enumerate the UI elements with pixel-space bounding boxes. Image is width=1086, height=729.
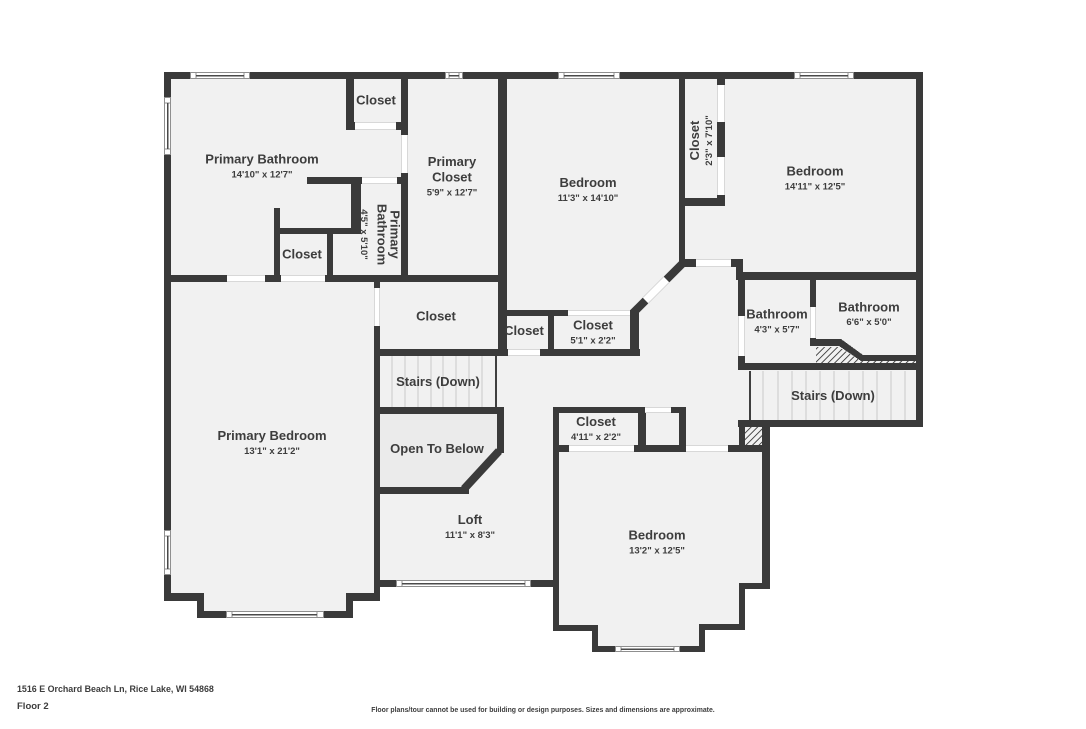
- svg-text:6'6" x 5'0": 6'6" x 5'0": [846, 317, 891, 328]
- svg-text:Primary Bathroom: Primary Bathroom: [205, 152, 318, 167]
- svg-text:14'10" x 12'7": 14'10" x 12'7": [231, 170, 292, 181]
- svg-text:14'11" x 12'5": 14'11" x 12'5": [785, 182, 846, 193]
- svg-text:Bedroom: Bedroom: [628, 528, 685, 543]
- svg-text:Primary: Primary: [428, 154, 477, 169]
- svg-text:Stairs (Down): Stairs (Down): [396, 374, 480, 389]
- svg-text:11'3" x 14'10": 11'3" x 14'10": [558, 193, 619, 204]
- svg-text:4'3" x 5'7": 4'3" x 5'7": [754, 325, 799, 336]
- svg-text:Closet: Closet: [432, 170, 472, 185]
- svg-text:11'1" x 8'3": 11'1" x 8'3": [445, 530, 495, 541]
- svg-text:Bedroom: Bedroom: [786, 164, 843, 179]
- svg-text:13'2" x 12'5": 13'2" x 12'5": [629, 546, 685, 557]
- svg-text:5'9" x 12'7": 5'9" x 12'7": [427, 188, 478, 199]
- svg-text:4'11" x 2'2": 4'11" x 2'2": [571, 432, 621, 443]
- svg-text:Closet: Closet: [576, 414, 616, 429]
- svg-text:13'1" x 21'2": 13'1" x 21'2": [244, 446, 300, 457]
- svg-text:Open To Below: Open To Below: [390, 441, 485, 456]
- svg-text:Loft: Loft: [458, 512, 483, 527]
- svg-text:Floor plans/tour cannot be use: Floor plans/tour cannot be used for buil…: [371, 707, 715, 714]
- svg-text:Stairs (Down): Stairs (Down): [791, 388, 875, 403]
- svg-text:2'3" x 7'10": 2'3" x 7'10": [704, 115, 715, 166]
- svg-text:Closet: Closet: [356, 93, 396, 108]
- svg-text:Closet: Closet: [687, 120, 702, 160]
- svg-text:Bathroom: Bathroom: [746, 307, 807, 322]
- svg-text:Closet: Closet: [282, 247, 322, 262]
- svg-text:Closet: Closet: [573, 318, 613, 333]
- svg-text:Closet: Closet: [416, 309, 456, 324]
- svg-text:5'1" x 2'2": 5'1" x 2'2": [570, 336, 615, 347]
- svg-text:Primary Bedroom: Primary Bedroom: [217, 428, 326, 443]
- svg-text:Floor 2: Floor 2: [17, 701, 49, 712]
- svg-text:1516 E Orchard Beach Ln, Rice: 1516 E Orchard Beach Ln, Rice Lake, WI 5…: [17, 684, 214, 694]
- svg-text:Bathroom: Bathroom: [838, 300, 899, 315]
- svg-text:4'5" x 5'10": 4'5" x 5'10": [358, 209, 369, 260]
- svg-text:Bathroom: Bathroom: [375, 204, 390, 265]
- svg-text:Closet: Closet: [504, 323, 544, 338]
- svg-text:Bedroom: Bedroom: [559, 175, 616, 190]
